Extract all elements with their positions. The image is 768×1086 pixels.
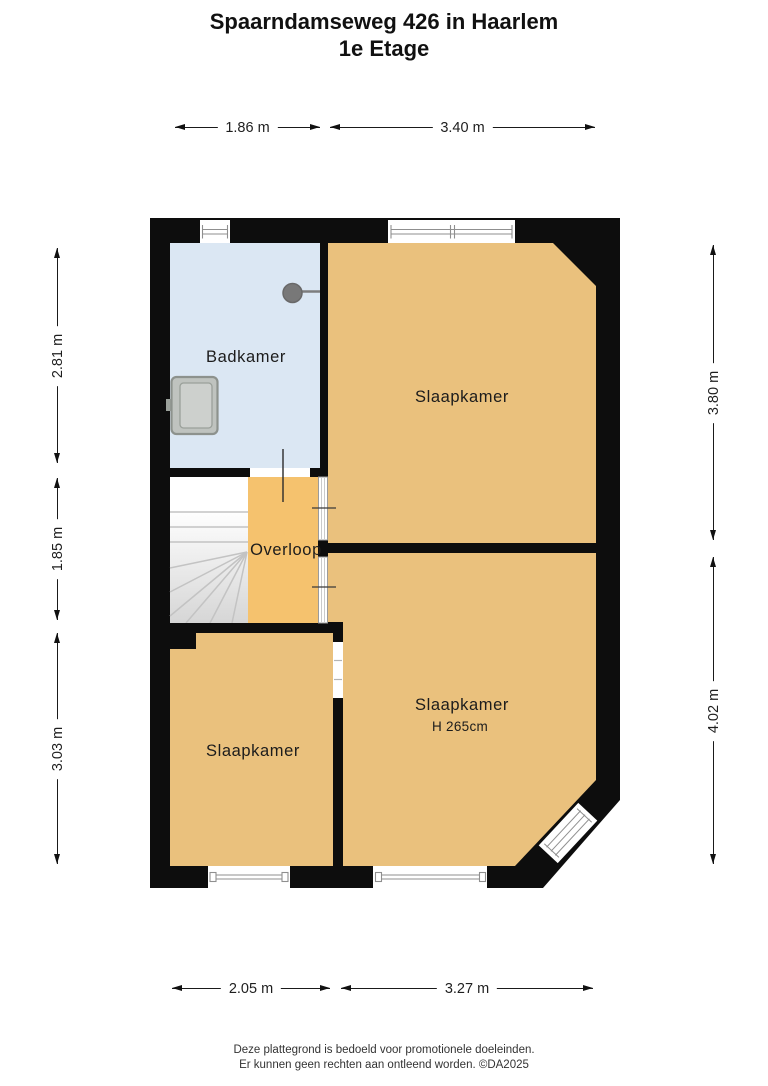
room-label-slaapkamer-right: Slaapkamer: [415, 696, 509, 714]
door-slaapkamer-left: [333, 642, 343, 698]
dim-label: 3.27 m: [437, 981, 497, 997]
dim-label: 3.03 m: [50, 718, 66, 778]
window-slaapkamer-left: [208, 866, 290, 888]
footer-line2: Er kunnen geen rechten aan ontleend word…: [0, 1058, 768, 1073]
room-label-slaapkamer-top: Slaapkamer: [415, 388, 509, 406]
dim-label: 2.05 m: [221, 981, 281, 997]
dim-label: 3.80 m: [706, 362, 722, 422]
dim-right-2: 4.02 m: [713, 557, 714, 864]
dim-left-3: 3.03 m: [57, 633, 58, 864]
room-label-overloop: Overloop: [250, 541, 322, 559]
footer-disclaimer: Deze plattegrond is bedoeld voor promoti…: [0, 1043, 768, 1073]
dim-top-left: 1.86 m: [175, 127, 320, 128]
room-label-badkamer: Badkamer: [206, 348, 286, 366]
dim-top-right: 3.40 m: [330, 127, 595, 128]
staircase: [170, 477, 248, 623]
dim-label: 1.85 m: [50, 519, 66, 579]
dim-right-1: 3.80 m: [713, 245, 714, 540]
room-height-slaapkamer-right: H 265cm: [432, 719, 488, 734]
page-title-line2: 1e Etage: [0, 35, 768, 62]
room-label-slaapkamer-left: Slaapkamer: [206, 742, 300, 760]
page-title: Spaarndamseweg 426 in Haarlem 1e Etage: [0, 8, 768, 62]
dim-left-2: 1.85 m: [57, 478, 58, 620]
dim-label: 3.40 m: [432, 120, 492, 136]
window-badkamer: [200, 220, 230, 243]
floorplan: Badkamer Slaapkamer Overloop Slaapkamer …: [150, 218, 620, 888]
footer-line1: Deze plattegrond is bedoeld voor promoti…: [0, 1043, 768, 1058]
page-title-line1: Spaarndamseweg 426 in Haarlem: [0, 8, 768, 35]
window-slaapkamer-top: [388, 220, 515, 243]
sink-icon: [166, 377, 218, 434]
window-slaapkamer-right: [373, 866, 487, 888]
dim-label: 4.02 m: [706, 680, 722, 740]
dim-bottom-right: 3.27 m: [341, 988, 593, 989]
dim-label: 2.81 m: [50, 325, 66, 385]
dim-left-1: 2.81 m: [57, 248, 58, 463]
dim-bottom-left: 2.05 m: [172, 988, 330, 989]
dim-label: 1.86 m: [217, 120, 277, 136]
